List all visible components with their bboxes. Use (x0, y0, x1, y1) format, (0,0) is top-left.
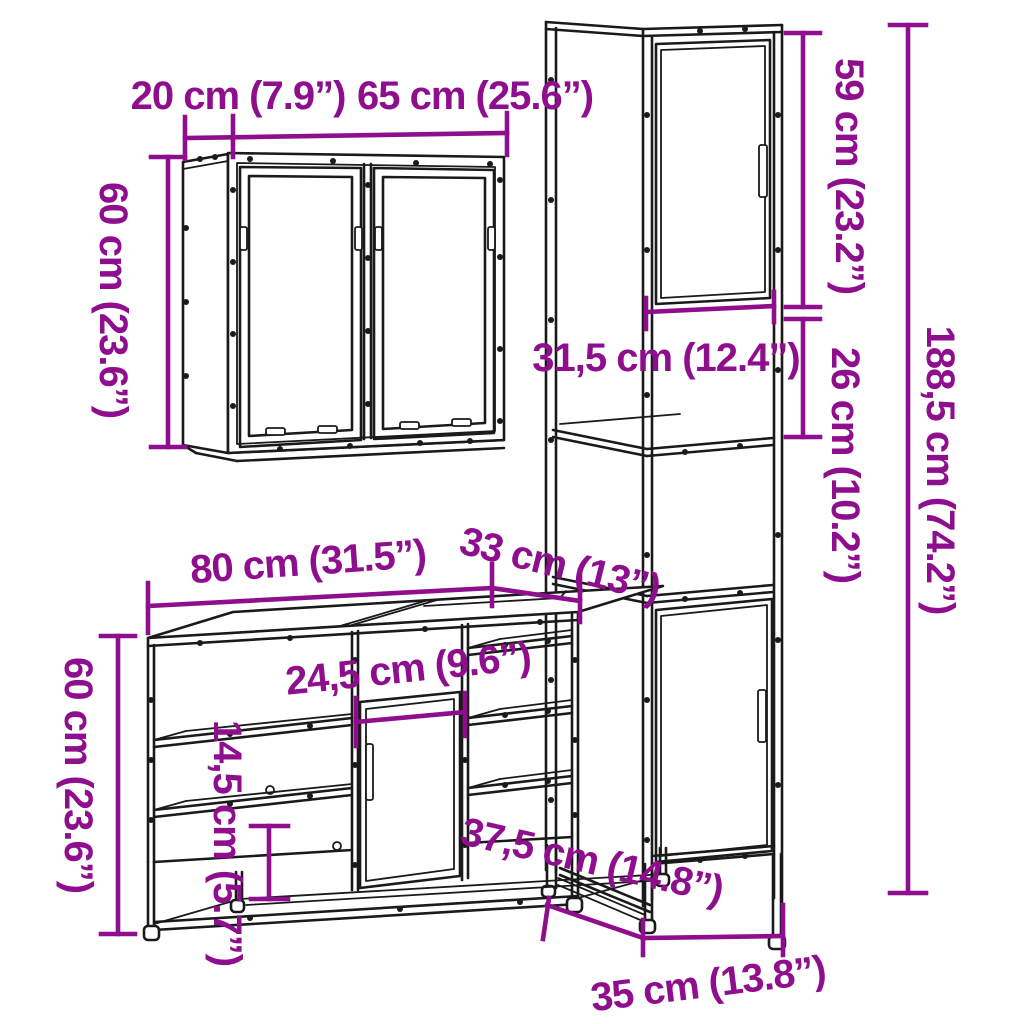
dim-label-tall-inner-width: 31,5 cm (12.4”) (532, 336, 799, 380)
dim-label-tall-upper-height: 59 cm (23.2”) (827, 58, 871, 294)
mirror-cabinet-drawing (183, 153, 504, 461)
product-dimension-diagram: 20 cm (7.9”) 65 cm (25.6”) 60 cm (23.6”)… (0, 0, 1024, 1024)
dim-label-mirror-depth: 20 cm (7.9”) (131, 74, 346, 118)
dim-label-mirror-width: 65 cm (25.6”) (357, 74, 593, 118)
furniture-line-art: 20 cm (7.9”) 65 cm (25.6”) 60 cm (23.6”)… (0, 0, 1024, 1024)
dim-label-tall-total-height: 188,5 cm (74.2”) (918, 326, 962, 615)
dim-label-tall-open-height: 26 cm (10.2”) (823, 347, 867, 583)
dim-label-vanity-height: 60 cm (23.6”) (56, 657, 100, 893)
dim-label-vanity-compartment-height: 14,5 cm (5.7”) (205, 720, 249, 966)
dim-label-vanity-door-width: 24,5 cm (9.6”) (283, 634, 532, 703)
dim-label-mirror-height: 60 cm (23.6”) (91, 182, 135, 418)
dim-label-vanity-width: 80 cm (31.5”) (189, 532, 428, 592)
dim-label-tall-width: 35 cm (13.8”) (588, 948, 828, 1020)
